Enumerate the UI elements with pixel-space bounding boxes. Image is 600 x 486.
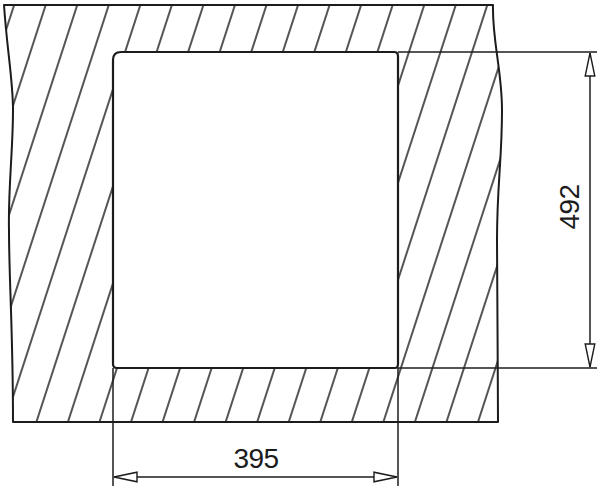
- height-arrow-up-icon: [585, 53, 595, 76]
- height-arrow-down-icon: [585, 344, 595, 367]
- cutout-outline: [113, 52, 398, 368]
- height-dimension-label: 492: [554, 184, 585, 229]
- technical-drawing: 492 395: [0, 0, 600, 486]
- countertop-hatched-area: [4, 5, 502, 422]
- width-dimension-label: 395: [233, 443, 278, 474]
- width-arrow-right-icon: [374, 472, 397, 482]
- sink-cutout-drawing: 492 395: [0, 0, 600, 486]
- width-arrow-left-icon: [114, 472, 137, 482]
